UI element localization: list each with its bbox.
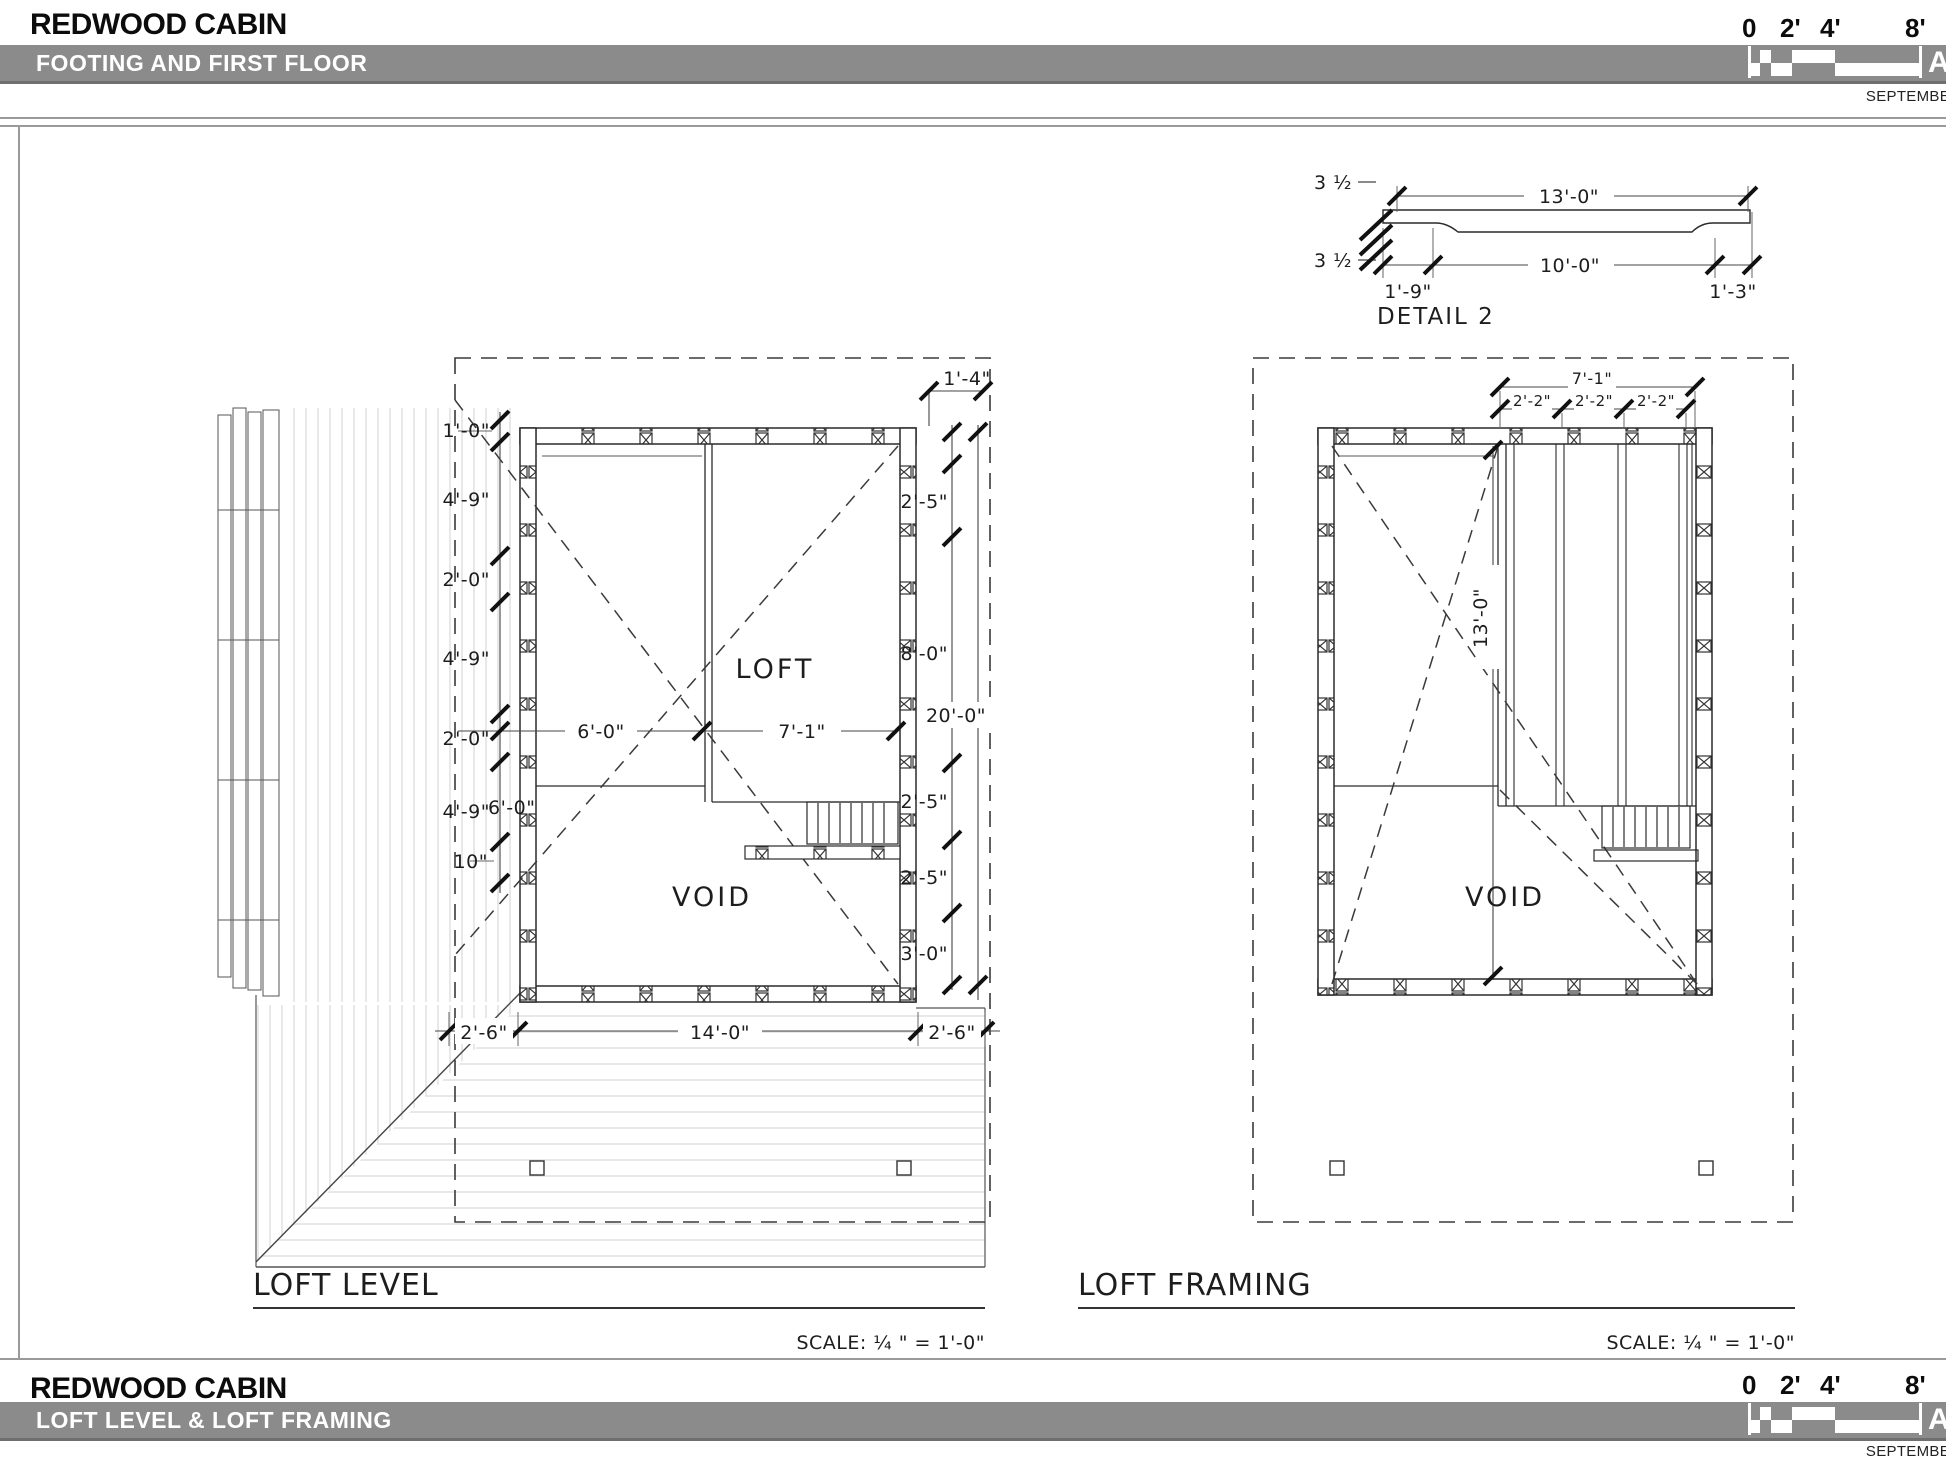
detail-2-beam-profile xyxy=(1383,210,1750,232)
post-marker xyxy=(1699,1161,1713,1175)
deck-edge-boards xyxy=(218,408,279,996)
dim-label: 8'-0" xyxy=(901,643,949,665)
dim-label: 2'-5" xyxy=(901,491,949,513)
dim-label: 2'-6" xyxy=(928,1022,976,1044)
dim-label: 2'-5" xyxy=(901,867,949,889)
dim-label: 4'-9" xyxy=(443,801,491,823)
dim-label: 2'-2" xyxy=(1575,392,1613,410)
footer-scale-tick-4: 4' xyxy=(1820,1370,1841,1401)
void-room-label: VOID xyxy=(1465,882,1545,913)
dim-label: 14'-0" xyxy=(690,1022,750,1044)
dim-label: 7'-1" xyxy=(778,721,826,743)
loft-level-plan: LOFT VOID 1'-0" 4'-9" 2'-0" 4'-9" 2'-0" … xyxy=(218,358,1000,1354)
detail-2-dim-clear: 10'-0" xyxy=(1540,255,1600,277)
dim-label: 2'-5" xyxy=(901,791,949,813)
dim-label: 1'-4" xyxy=(943,368,991,390)
dim-label: 1'-0" xyxy=(443,420,491,442)
dim-label-overlap: 6'-0" xyxy=(488,797,536,819)
detail-2-dim-left-bearing: 1'-9" xyxy=(1384,281,1432,303)
dim-label: 7'-1" xyxy=(1572,369,1612,388)
footer-scale-tick-8: 8' xyxy=(1905,1370,1926,1401)
post-marker xyxy=(530,1161,544,1175)
footer-date: SEPTEMBE xyxy=(1866,1443,1946,1460)
footer-band-underline xyxy=(0,1438,1946,1441)
dim-label: 2'-6" xyxy=(460,1022,508,1044)
post-marker xyxy=(1330,1161,1344,1175)
loft-level-title: LOFT LEVEL xyxy=(253,1268,439,1303)
void-room-label: VOID xyxy=(672,882,752,913)
cabin-walls xyxy=(520,428,916,1002)
dim-label: 3'-0" xyxy=(901,943,949,965)
loft-framing-plan: 13'-0" 7'-1" 2'-2" 2'-2" xyxy=(1078,358,1795,1354)
detail-2-drawing: 13'-0" 10'-0" 1'-9" 1'-3" 3 ½ 3 ½ DETAIL… xyxy=(1314,172,1761,330)
detail-2-label: DETAIL 2 xyxy=(1377,304,1495,330)
top-dimension-chain: 7'-1" 2'-2" 2'-2" 2'-2" xyxy=(1491,369,1704,428)
detail-2-dim-depth-bottom: 3 ½ xyxy=(1314,250,1352,272)
footer-graphic-scale-bar xyxy=(1750,1407,1920,1433)
post-marker xyxy=(897,1161,911,1175)
footer-sheet-title: LOFT LEVEL & LOFT FRAMING xyxy=(0,1402,1946,1438)
detail-2-dim-overall: 13'-0" xyxy=(1539,186,1599,208)
footer-sheet-letter: A xyxy=(1928,1403,1946,1437)
loft-joists xyxy=(1514,444,1692,806)
dim-label: 4'-9" xyxy=(443,489,491,511)
dim-label: 10" xyxy=(454,851,488,873)
stairs xyxy=(745,802,900,859)
detail-2-dim-right-bearing: 1'-3" xyxy=(1709,281,1757,303)
footer-project-title: REDWOOD CABIN xyxy=(30,1372,287,1406)
stairs xyxy=(1594,806,1698,861)
loft-level-scale-note: SCALE: ¼ " = 1'-0" xyxy=(796,1332,985,1354)
dim-label: 13'-0" xyxy=(1470,588,1492,648)
dim-label: 2'-0" xyxy=(443,569,491,591)
loft-framing-title: LOFT FRAMING xyxy=(1078,1268,1312,1303)
loft-room-label: LOFT xyxy=(736,654,815,685)
dim-label: 4'-9" xyxy=(443,648,491,670)
detail-2-dim-depth-top: 3 ½ xyxy=(1314,172,1352,194)
loft-framing-scale-note: SCALE: ¼ " = 1'-0" xyxy=(1606,1332,1795,1354)
footer-scale-tick-0: 0 xyxy=(1742,1370,1756,1401)
drawing-canvas: 13'-0" 10'-0" 1'-9" 1'-3" 3 ½ 3 ½ DETAIL… xyxy=(0,0,1946,1460)
footer-band: LOFT LEVEL & LOFT FRAMING xyxy=(0,1402,1946,1438)
dim-label: 6'-0" xyxy=(577,721,625,743)
footer-scale-tick-2: 2' xyxy=(1780,1370,1801,1401)
dim-label: 20'-0" xyxy=(926,705,986,727)
drawing-sheet: REDWOOD CABIN FOOTING AND FIRST FLOOR 0 … xyxy=(0,0,1946,1460)
dim-label: 2'-2" xyxy=(1637,392,1675,410)
dim-label: 2'-2" xyxy=(1513,392,1551,410)
